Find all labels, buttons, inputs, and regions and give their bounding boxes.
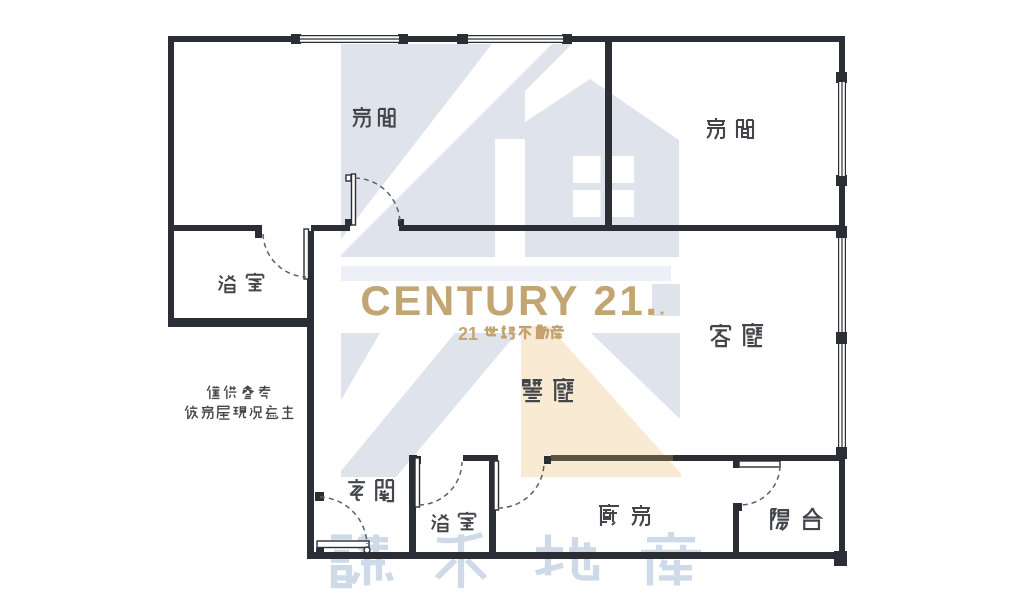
svg-text:21: 21 bbox=[458, 324, 478, 344]
svg-text:CENTURY 21.: CENTURY 21. bbox=[360, 277, 659, 324]
